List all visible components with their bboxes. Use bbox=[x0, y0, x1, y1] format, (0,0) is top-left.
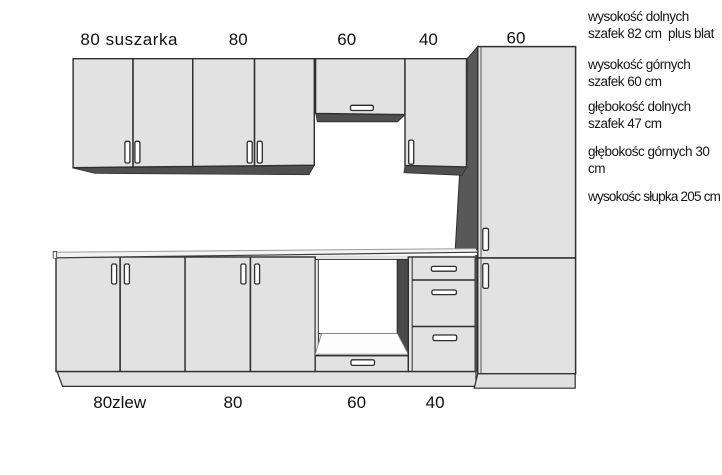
svg-text:40: 40 bbox=[419, 30, 438, 49]
svg-text:80zlew: 80zlew bbox=[93, 393, 147, 412]
svg-text:40: 40 bbox=[426, 393, 445, 412]
svg-text:60: 60 bbox=[347, 393, 366, 412]
svg-text:60: 60 bbox=[337, 30, 356, 49]
svg-text:80: 80 bbox=[229, 30, 248, 49]
svg-text:80 suszarka: 80 suszarka bbox=[80, 30, 178, 49]
svg-text:80: 80 bbox=[224, 393, 243, 412]
svg-text:60: 60 bbox=[507, 28, 526, 47]
